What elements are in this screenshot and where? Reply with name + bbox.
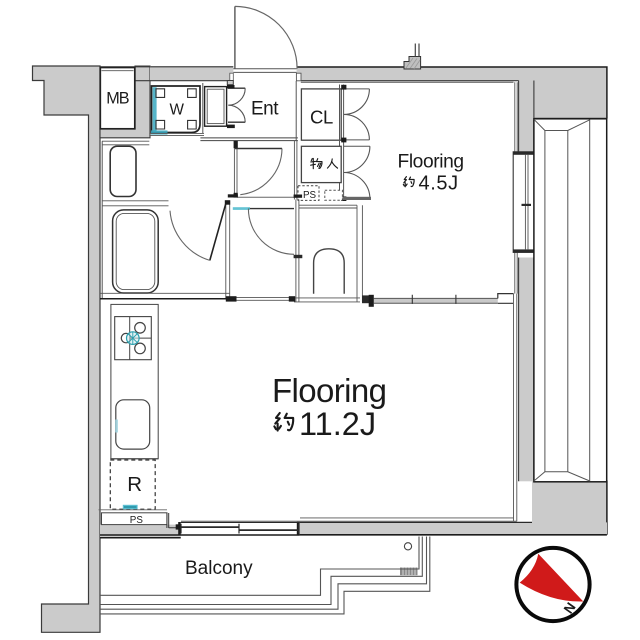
svg-text:PS: PS <box>303 190 317 201</box>
svg-text:W: W <box>170 101 185 118</box>
svg-text:MB: MB <box>106 90 129 108</box>
svg-text:R: R <box>127 473 142 496</box>
svg-text:Flooring: Flooring <box>272 372 386 409</box>
svg-text:CL: CL <box>310 107 333 128</box>
svg-text:Balcony: Balcony <box>185 558 253 579</box>
svg-text:PS: PS <box>130 515 144 526</box>
svg-text:4.5J: 4.5J <box>419 172 459 194</box>
svg-text:Ent: Ent <box>251 99 279 120</box>
svg-text:11.2J: 11.2J <box>299 406 376 442</box>
svg-text:Flooring: Flooring <box>398 151 464 172</box>
